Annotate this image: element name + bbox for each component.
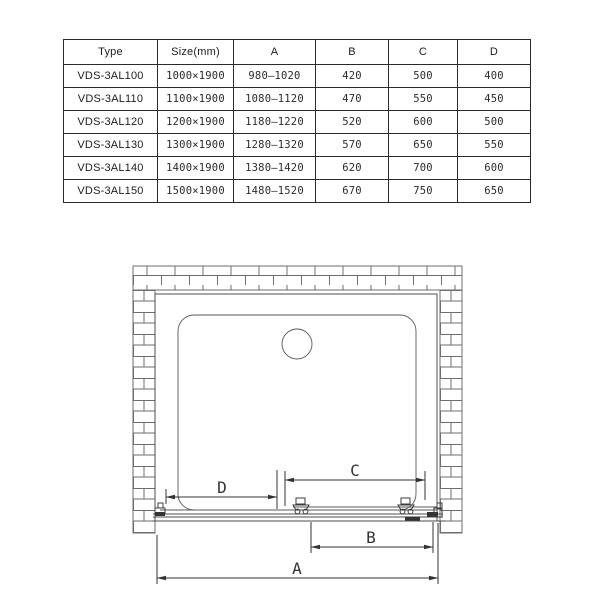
door-roller-right [398,498,414,514]
wall-bracket-left [155,503,165,516]
dimension-c: C [285,461,425,506]
shower-frame [155,294,437,521]
dimension-a: A [157,523,438,584]
drain-icon [282,329,312,359]
dimension-b: B [311,522,433,553]
technical-drawing: D C B A [0,0,600,600]
brick-wall-top [133,266,462,290]
door-handle-icon [405,517,420,521]
dim-label-d: D [217,478,227,497]
brick-wall-right [440,290,462,533]
dim-label-b: B [366,528,376,547]
brick-wall-left [133,290,155,533]
shower-tray [178,315,416,510]
door-roller-left [293,498,309,514]
dimension-d: D [166,470,277,509]
dim-label-a: A [292,559,302,578]
spec-sheet: Type Size(mm) A B C D VDS-3AL100 1000×19… [0,0,600,600]
dim-label-c: C [350,461,360,480]
